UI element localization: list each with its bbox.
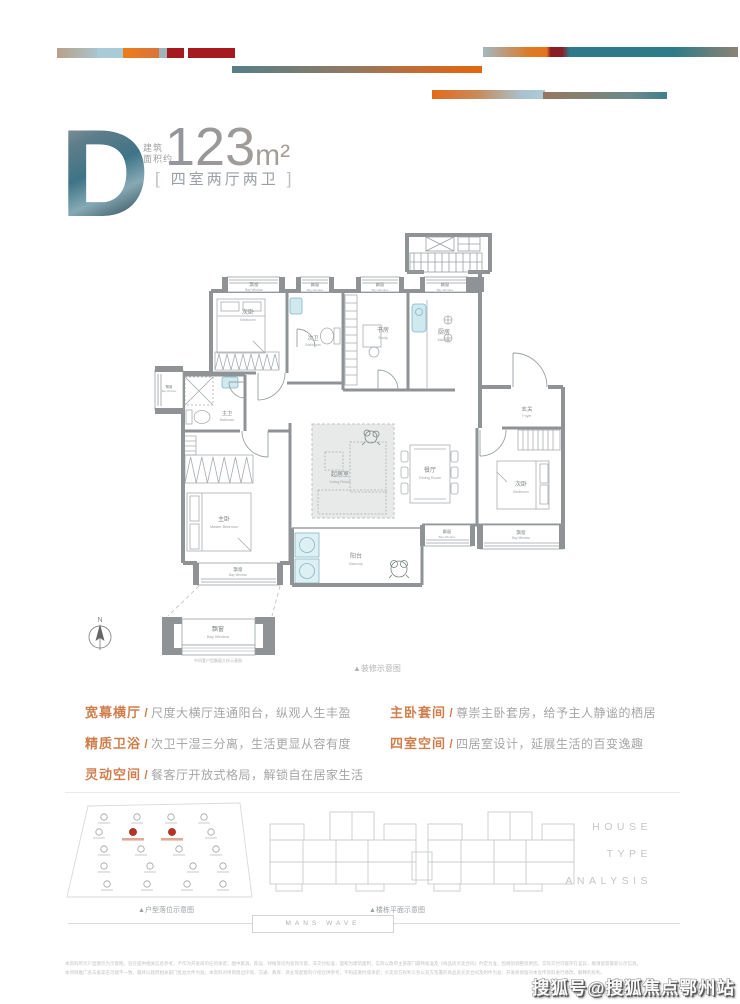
svg-text:Bay Window: Bay Window: [437, 288, 455, 292]
site-plan-diagram: ▲户型落位示意图: [67, 803, 252, 914]
area-value: 123m²: [165, 120, 290, 174]
svg-text:Foyer: Foyer: [522, 414, 532, 418]
feature-desc: 次卫干湿三分离，生活更显从容有度: [151, 737, 351, 751]
floor-caption: ▲楼栋平面示意图: [369, 905, 425, 914]
svg-text:N: N: [97, 617, 102, 624]
svg-text:主卫: 主卫: [222, 410, 232, 417]
svg-text:Living Room: Living Room: [329, 480, 350, 484]
feature-label: 灵动空间: [85, 767, 141, 782]
feature-desc: 尺度大横厅连通阳台，纵观人生丰盈: [151, 706, 351, 720]
svg-text:Study: Study: [378, 336, 388, 340]
projection-lines: [168, 586, 280, 616]
bay-window-detail: 飘窗 Bay Window 中间套户型飘窗大样示意图: [162, 617, 275, 663]
feature-separator: /: [446, 706, 456, 720]
decor-seg: [188, 48, 235, 58]
svg-text:飘窗: 飘窗: [311, 281, 319, 288]
svg-text:飘窗: 飘窗: [166, 384, 173, 389]
svg-text:Bay Window: Bay Window: [207, 634, 229, 639]
svg-text:厨房: 厨房: [438, 328, 450, 336]
feature-label: 主卧套间: [390, 705, 446, 720]
svg-text:飘窗: 飘窗: [516, 529, 526, 536]
decor-seg: [123, 48, 159, 58]
svg-text:Master Bedroom: Master Bedroom: [210, 525, 238, 529]
living-room-shade: [312, 424, 394, 518]
svg-text:Bedroom: Bedroom: [513, 490, 528, 494]
site-caption: ▲户型落位示意图: [138, 905, 194, 914]
svg-text:飘窗: 飘窗: [441, 281, 449, 288]
svg-text:次卫: 次卫: [307, 334, 319, 342]
plan-note: ▲装修示意图: [353, 663, 401, 673]
north-compass-icon: N: [89, 617, 111, 650]
feature-desc: 餐客厅开放式格局，解锁自在居家生活: [151, 768, 364, 782]
svg-text:Bay Window: Bay Window: [245, 288, 263, 292]
decor-seg: [167, 48, 184, 58]
svg-text:Bay Window: Bay Window: [439, 535, 457, 539]
svg-text:Bathroom: Bathroom: [305, 343, 321, 347]
analysis-line: HOUSE: [565, 814, 652, 841]
floor-plan: 次卧 Bedroom 次卫 Bathroom 书房 Study 厨房 Kitch…: [0, 225, 740, 675]
house-type-analysis: HOUSE TYPE ANALYSIS: [565, 814, 652, 895]
features-right: 主卧套间 / 尊崇主卧套房，给予主人静谧的栖居 四室空间 / 四居室设计，延展生…: [390, 702, 656, 764]
feature-separator: /: [446, 737, 456, 751]
feature-row: 宽幕横厅 / 尺度大横厅连通阳台，纵观人生丰盈: [85, 702, 364, 721]
layout-label-row: [四室两厅两卫]: [147, 168, 302, 189]
bracket-close: ]: [279, 169, 303, 188]
analysis-line: TYPE: [565, 841, 652, 868]
decor-bar-top-left: [57, 48, 235, 58]
svg-text:Bay Window: Bay Window: [229, 573, 247, 577]
svg-text:餐厅: 餐厅: [424, 466, 436, 474]
unit-letter: D: [60, 112, 150, 236]
svg-text:Bathroom: Bathroom: [220, 418, 235, 422]
feature-separator: /: [141, 706, 151, 720]
feature-row: 四室空间 / 四居室设计，延展生活的百变逸趣: [390, 733, 656, 752]
feature-row: 精质卫浴 / 次卫干湿三分离，生活更显从容有度: [85, 733, 364, 752]
brand-badge: MANS WAVE: [252, 915, 394, 933]
svg-text:Bay Window: Bay Window: [307, 288, 325, 292]
feature-separator: /: [141, 737, 151, 751]
svg-text:玄关: 玄关: [521, 405, 533, 413]
feature-desc: 四居室设计，延展生活的百变逸趣: [456, 737, 644, 751]
svg-text:阳台: 阳台: [350, 552, 362, 560]
svg-text:主卧: 主卧: [218, 515, 230, 523]
disclaimer-line: 本资料所示户型图仅为示意图，旨在提供相关信息参考，不作为开发商的任何承诺；图中家…: [65, 959, 677, 968]
floor-plate-diagram: ▲楼栋平面示意图: [270, 812, 574, 914]
svg-text:书房: 书房: [377, 326, 389, 334]
decor-seg: [57, 48, 97, 58]
decor-bar-top-right: [483, 47, 738, 57]
svg-text:飘窗: 飘窗: [376, 281, 384, 288]
svg-text:Dining Room: Dining Room: [419, 476, 441, 480]
svg-text:Bay Window: Bay Window: [372, 288, 390, 292]
feature-row: 主卧套间 / 尊崇主卧套房，给予主人静谧的栖居: [390, 702, 656, 721]
bracket-open: [: [147, 169, 171, 188]
stair-core: [410, 237, 482, 272]
svg-text:次卧: 次卧: [515, 480, 527, 488]
feature-separator: /: [141, 768, 151, 782]
svg-text:飘窗: 飘窗: [249, 281, 259, 288]
decor-seg: [159, 48, 167, 58]
feature-label: 精质卫浴: [85, 736, 141, 751]
feature-label: 四室空间: [390, 736, 446, 751]
svg-text:飘窗: 飘窗: [233, 566, 243, 573]
svg-text:Kitchen: Kitchen: [438, 338, 451, 342]
svg-text:Bay Window: Bay Window: [512, 536, 530, 540]
feature-label: 宽幕横厅: [85, 705, 141, 720]
feature-row: 灵动空间 / 餐客厅开放式格局，解锁自在居家生活: [85, 764, 364, 783]
svg-text:飘窗: 飘窗: [443, 528, 451, 535]
feature-desc: 尊崇主卧套房，给予主人静谧的栖居: [456, 706, 656, 720]
svg-text:起居室: 起居室: [331, 470, 349, 478]
decor-bar-lower-left: [432, 90, 545, 99]
decor-seg: [97, 48, 123, 58]
features-left: 宽幕横厅 / 尺度大横厅连通阳台，纵观人生丰盈 精质卫浴 / 次卫干湿三分离，生…: [85, 702, 364, 795]
svg-text:Bay Window: Bay Window: [162, 389, 177, 393]
analysis-line: ANALYSIS: [565, 868, 652, 895]
svg-text:次卧: 次卧: [242, 308, 254, 316]
svg-text:Bedroom: Bedroom: [240, 318, 255, 322]
watermark: 搜狐号@搜狐焦点鄂州站: [532, 975, 735, 1000]
svg-text:飘窗: 飘窗: [212, 625, 224, 633]
decor-bar-lower-right: [543, 92, 667, 99]
svg-text:Balcony: Balcony: [349, 562, 363, 566]
decor-bar-middle: [232, 66, 482, 73]
bay-detail-caption: 中间套户型飘窗大样示意图: [194, 657, 242, 663]
layout-label: 四室两厅两卫: [171, 171, 279, 188]
